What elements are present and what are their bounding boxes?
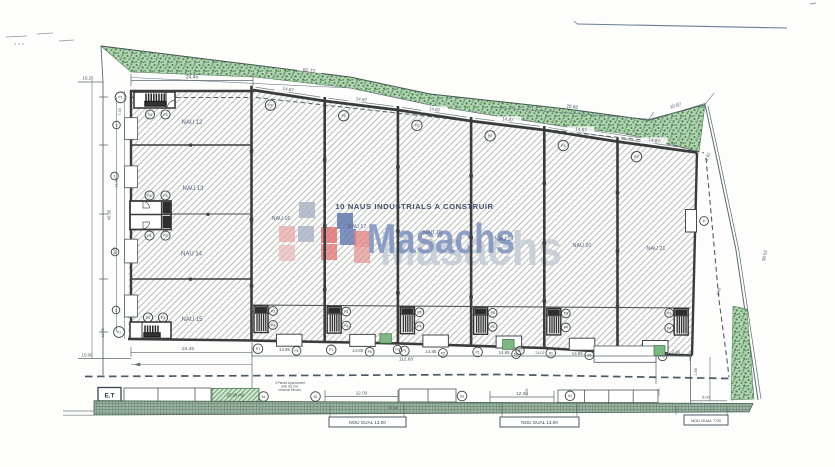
svg-text:NAU 21: NAU 21 [647,246,666,252]
svg-text:P2: P2 [561,144,565,148]
svg-text:NOU GUAL 13.00: NOU GUAL 13.00 [349,420,386,425]
svg-text:24.45: 24.45 [182,346,194,352]
svg-text:P3: P3 [667,311,671,315]
svg-text:E.T: E.T [104,393,114,400]
svg-text:NAU 13: NAU 13 [182,186,204,192]
svg-text:NAU 14: NAU 14 [181,252,203,258]
svg-text:63: 63 [460,394,464,398]
svg-text:P4: P4 [667,326,671,330]
svg-text:P1: P1 [117,330,121,334]
svg-text:24.02: 24.02 [536,351,545,355]
svg-text:P2: P2 [268,103,272,107]
svg-text:NAU 20: NAU 20 [573,243,592,249]
svg-text:12.00: 12.00 [356,391,368,396]
svg-text:3: 3 [114,174,116,178]
svg-text:P4: P4 [148,113,152,117]
svg-text:P3: P3 [271,309,275,313]
svg-text:6.00: 6.00 [702,395,711,400]
svg-text:P3: P3 [344,310,348,314]
svg-text:P6: P6 [294,349,298,353]
svg-text:61: 61 [262,395,266,399]
svg-text:P1: P1 [402,349,406,353]
svg-text:3: 3 [116,123,118,127]
svg-text:P3: P3 [163,234,167,238]
svg-text:reservat Minusv.: reservat Minusv. [278,388,301,392]
svg-text:13.30: 13.30 [113,247,117,257]
svg-text:5.00: 5.00 [657,389,661,396]
svg-text:P3: P3 [163,194,167,198]
svg-text:NOU GUAL 7.00: NOU GUAL 7.00 [691,418,721,423]
svg-text:64: 64 [568,394,572,398]
svg-text:NOU GUAL 13.00: NOU GUAL 13.00 [521,420,558,425]
svg-text:5.00: 5.00 [525,389,529,396]
svg-text:112.60: 112.60 [399,357,414,363]
svg-text:P4: P4 [417,325,421,329]
svg-text:P6: P6 [587,354,591,358]
svg-text:P3: P3 [161,316,165,320]
svg-text:P2: P2 [488,134,492,138]
svg-text:P3: P3 [491,311,495,315]
svg-text:P4: P4 [344,324,348,328]
svg-text:Masachs: Masachs [367,215,515,262]
svg-text:NAU 19: NAU 19 [495,237,514,243]
svg-text:P1: P1 [329,348,333,352]
svg-text:P4: P4 [564,326,568,330]
svg-text:P1: P1 [476,350,480,354]
svg-text:17.54: 17.54 [389,406,398,410]
svg-text:13.30: 13.30 [115,178,119,188]
svg-text:P4: P4 [147,194,151,198]
svg-text:49.50: 49.50 [107,209,112,220]
svg-text:14.85: 14.85 [425,349,437,354]
svg-text:NAU 16: NAU 16 [272,216,291,222]
svg-text:14.85: 14.85 [279,347,291,352]
svg-text:P4: P4 [147,234,151,238]
svg-text:24.45: 24.45 [186,75,199,81]
svg-text:P7: P7 [395,348,399,352]
svg-text:P6: P6 [441,351,445,355]
svg-text:10 NAUS INDUSTRIALS A CONSTRUI: 10 NAUS INDUSTRIALS A CONSTRUIR [335,202,493,211]
svg-text:P4: P4 [271,323,275,327]
svg-text:15.25: 15.25 [83,76,95,81]
svg-text:P2: P2 [415,124,419,128]
svg-text:NAU 18: NAU 18 [423,230,442,236]
svg-text:62: 62 [314,395,318,399]
svg-text:P7: P7 [518,349,522,353]
svg-text:P1: P1 [118,96,122,100]
svg-text:P3: P3 [564,312,568,316]
svg-text:P3: P3 [417,311,421,315]
svg-text:3: 3 [115,308,117,312]
svg-text:P4: P4 [491,325,495,329]
svg-text:25.00 m2: 25.00 m2 [227,393,245,398]
svg-text:2.45: 2.45 [672,350,679,354]
svg-text:NAU 17: NAU 17 [348,224,367,230]
svg-text:P4: P4 [146,316,150,320]
svg-text:1.88: 1.88 [694,368,698,375]
svg-text:P6: P6 [368,350,372,354]
svg-text:NAU 15: NAU 15 [181,317,203,323]
svg-text:14.85: 14.85 [572,351,584,356]
svg-text:7.45: 7.45 [118,108,122,115]
svg-text:15.00: 15.00 [82,353,94,358]
svg-text:12.45: 12.45 [101,328,105,338]
svg-text:P1: P1 [256,347,260,351]
svg-text:P3: P3 [163,113,167,117]
svg-text:P2: P2 [634,155,638,159]
svg-text:14.85: 14.85 [352,348,364,353]
svg-text:P2: P2 [342,114,346,118]
svg-text:NAU 12: NAU 12 [181,120,203,126]
svg-text:14.85: 14.85 [499,350,511,355]
svg-text:P1: P1 [549,351,553,355]
